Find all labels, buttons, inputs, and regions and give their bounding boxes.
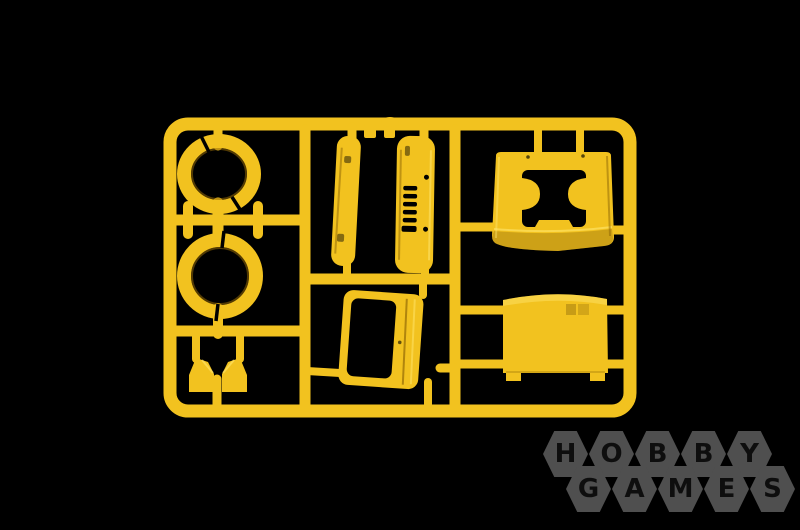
vent-slot: [403, 202, 417, 207]
watermark-letter: E: [718, 476, 736, 502]
cab-rear-bulkhead: [492, 152, 614, 251]
cab-hole-1: [526, 155, 530, 159]
watermark-letter: G: [578, 476, 599, 502]
vent-slot: [403, 210, 417, 215]
watermark-letter: O: [600, 441, 622, 467]
slab-a-recess-2: [337, 234, 344, 242]
cab-door: [338, 289, 424, 389]
roof-hatch-2: [578, 304, 589, 315]
cab-hole-2: [581, 154, 585, 158]
watermark-letter: H: [555, 441, 577, 467]
door-left-stub: [307, 371, 340, 373]
hobby-games-watermark: H O B B Y G A M E S: [540, 431, 798, 515]
cab-center-tab: [535, 220, 573, 227]
gate-nub: [381, 117, 399, 127]
photo-canvas: H O B B Y G A M E S: [0, 0, 800, 530]
watermark-letter: B: [694, 441, 714, 467]
watermark-letter: A: [624, 476, 644, 502]
vent-slot: [403, 186, 417, 191]
slab-b-dash: [405, 146, 410, 156]
roof-panel-body: [503, 294, 608, 381]
watermark-letter: B: [648, 441, 668, 467]
vent-slot-wide: [402, 226, 417, 232]
slab-a-recess-1: [344, 156, 351, 163]
watermark-letter: Y: [740, 441, 759, 467]
watermark-letter: S: [763, 476, 782, 502]
roof-panel: [503, 294, 608, 381]
vent-slot: [403, 194, 417, 199]
vent-slot: [403, 218, 417, 223]
sprue-tab-1: [364, 124, 376, 138]
door-window-opening: [346, 298, 396, 379]
ring2-gap-top: [222, 231, 224, 248]
vented-slab-panel: [395, 136, 435, 274]
watermark-letter: M: [668, 476, 694, 502]
ring2-gap-bottom: [216, 304, 218, 321]
roof-hatch-1: [566, 304, 576, 315]
